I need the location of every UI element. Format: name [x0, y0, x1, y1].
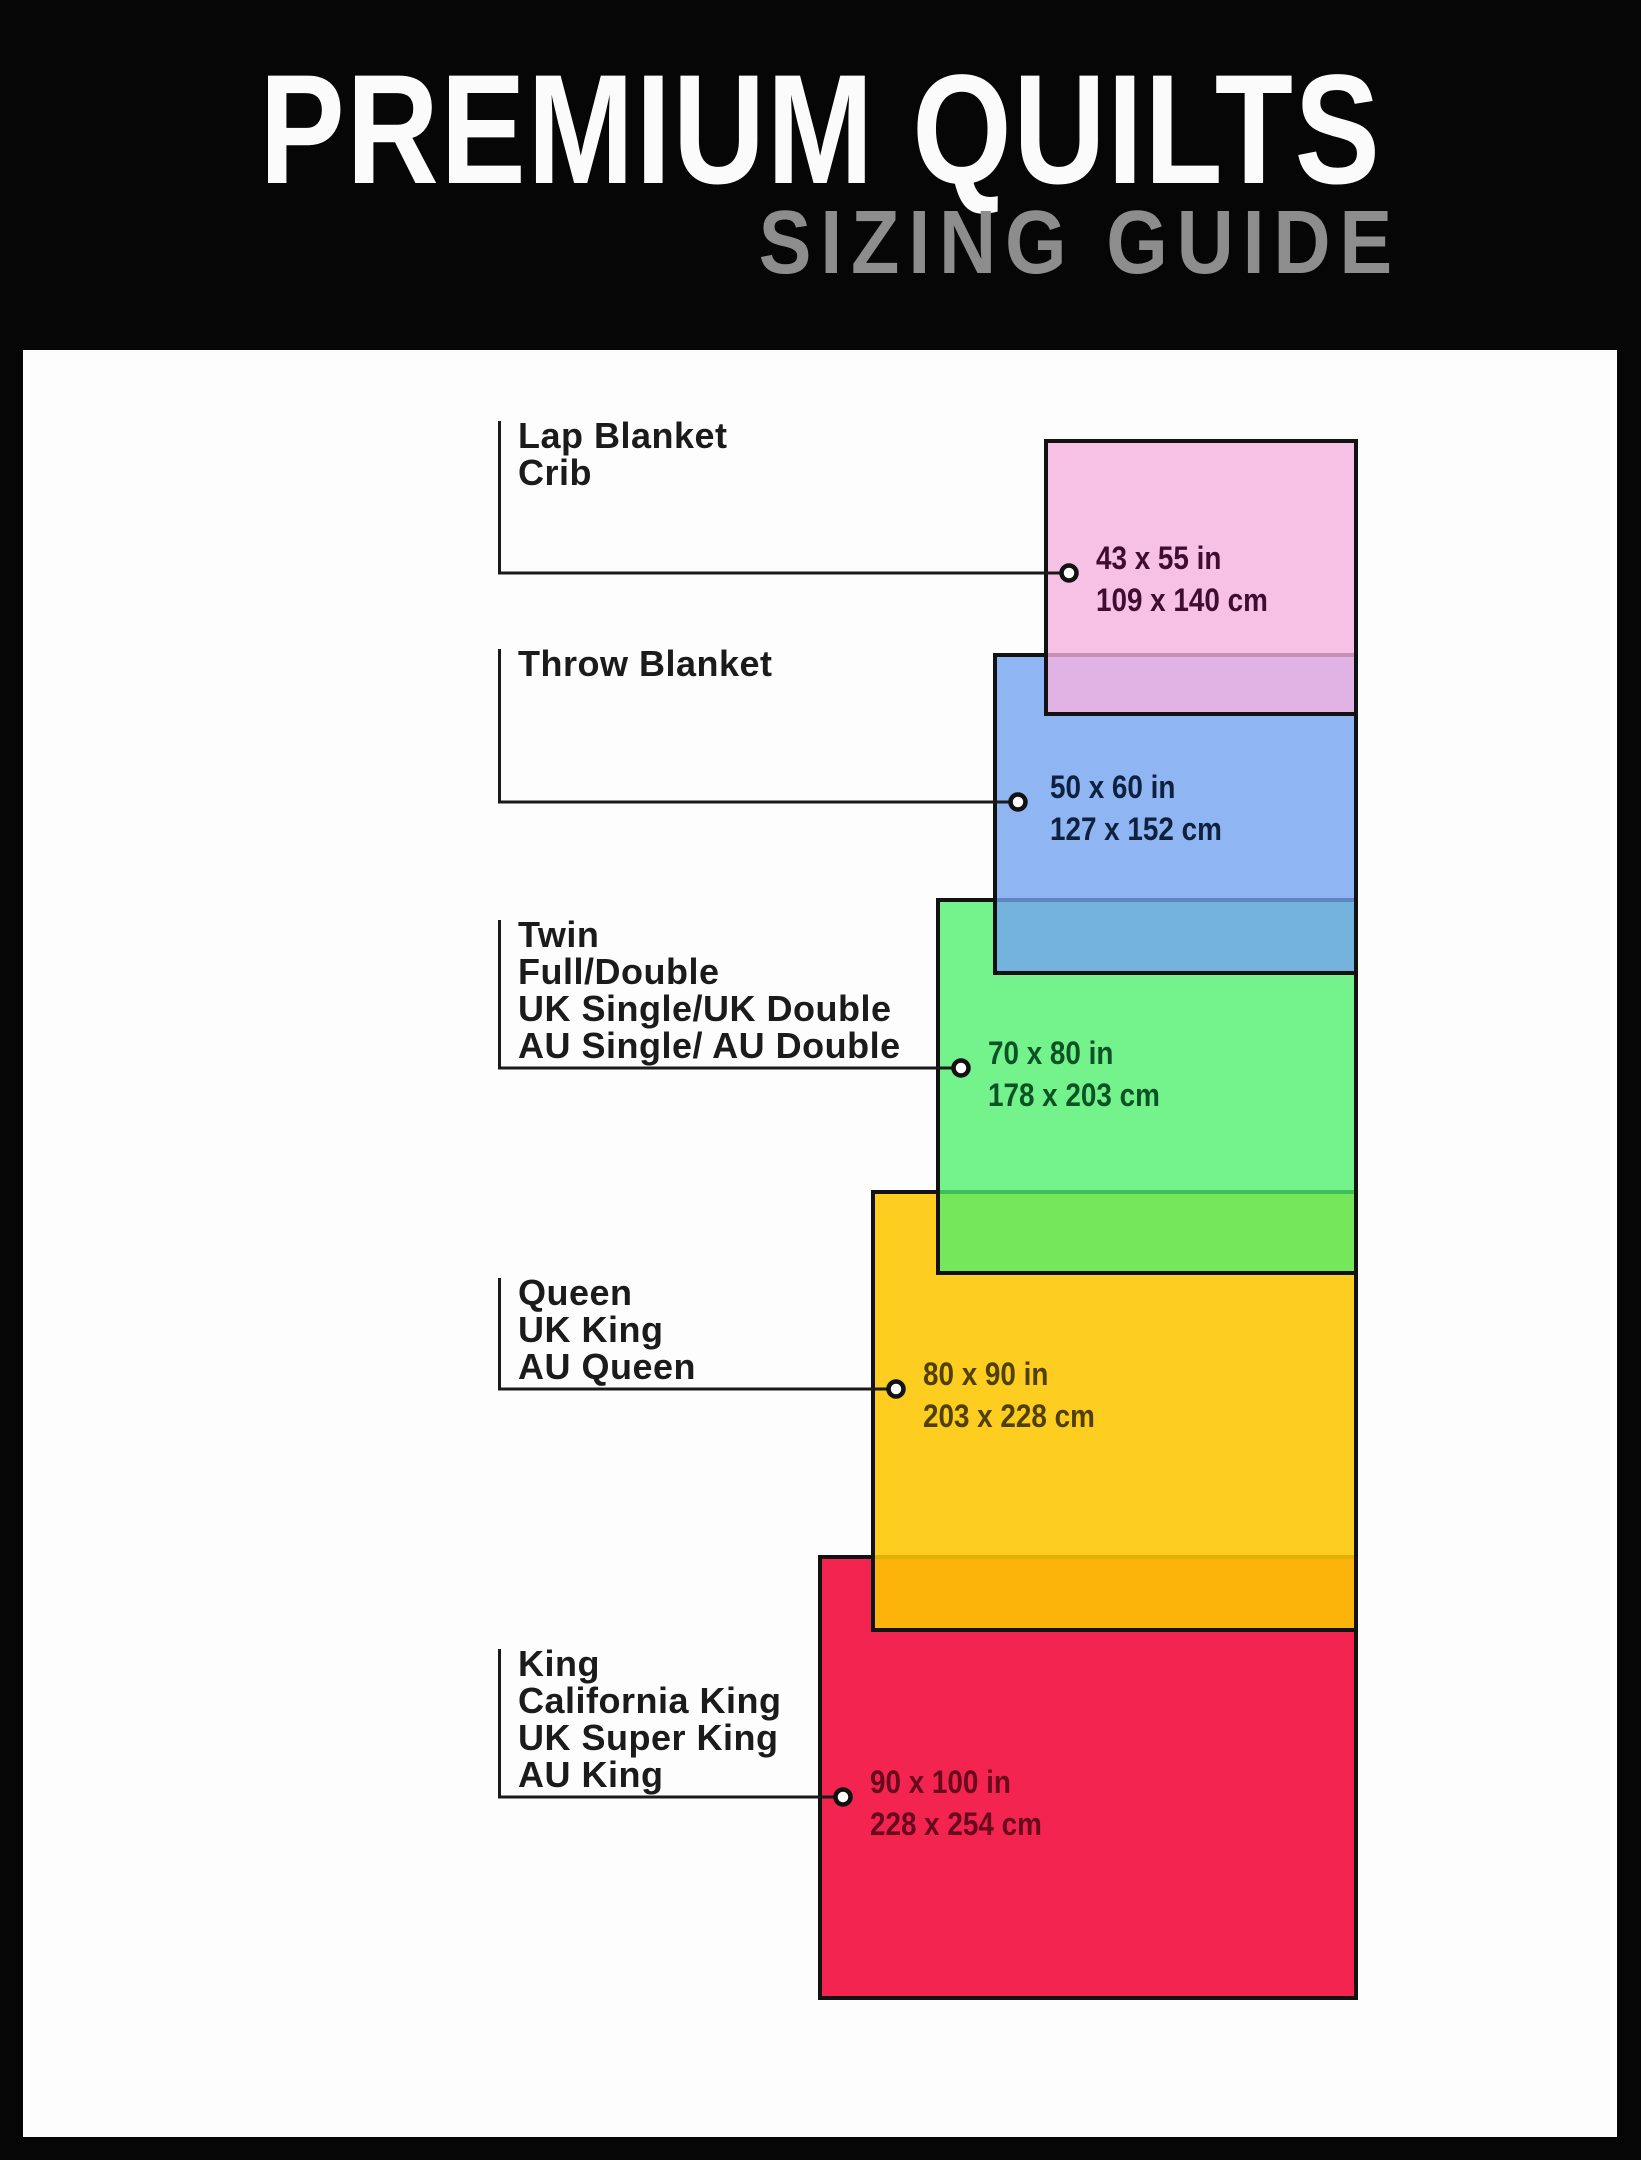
label-line: Twin	[518, 916, 901, 953]
label-block-throw-blanket: Throw Blanket	[518, 645, 773, 682]
label-line: Lap Blanket	[518, 417, 728, 454]
label-block-lap-blanket-crib: Lap Blanket Crib	[518, 417, 728, 491]
label-block-king: King California King UK Super King AU Ki…	[518, 1645, 782, 1793]
size-label-queen: 80 x 90 in 203 x 228 cm	[923, 1353, 1095, 1437]
size-label-cm: 203 x 228 cm	[923, 1395, 1095, 1437]
size-label-in: 43 x 55 in	[1096, 537, 1268, 579]
infographic-page: PREMIUM QUILTS SIZING GUIDE	[0, 0, 1641, 2160]
size-label-throw-blanket: 50 x 60 in 127 x 152 cm	[1050, 766, 1222, 850]
label-line: AU King	[518, 1756, 782, 1793]
label-line: UK Super King	[518, 1719, 782, 1756]
size-label-in: 70 x 80 in	[988, 1032, 1160, 1074]
page-subtitle: SIZING GUIDE	[759, 198, 1401, 288]
page-title: PREMIUM QUILTS	[148, 52, 1494, 208]
size-label-in: 90 x 100 in	[870, 1761, 1042, 1803]
size-label-king: 90 x 100 in 228 x 254 cm	[870, 1761, 1042, 1845]
label-line: Queen	[518, 1274, 696, 1311]
label-line: AU Queen	[518, 1348, 696, 1385]
size-label-cm: 228 x 254 cm	[870, 1803, 1042, 1845]
label-line: Crib	[518, 454, 728, 491]
label-line: UK Single/UK Double	[518, 990, 901, 1027]
size-label-in: 50 x 60 in	[1050, 766, 1222, 808]
label-line: UK King	[518, 1311, 696, 1348]
label-line: King	[518, 1645, 782, 1682]
label-block-twin: Twin Full/Double UK Single/UK Double AU …	[518, 916, 901, 1064]
size-label-cm: 178 x 203 cm	[988, 1074, 1160, 1116]
size-label-in: 80 x 90 in	[923, 1353, 1095, 1395]
size-label-twin: 70 x 80 in 178 x 203 cm	[988, 1032, 1160, 1116]
label-line: AU Single/ AU Double	[518, 1027, 901, 1064]
label-line: California King	[518, 1682, 782, 1719]
size-label-cm: 109 x 140 cm	[1096, 579, 1268, 621]
size-label-lap-blanket-crib: 43 x 55 in 109 x 140 cm	[1096, 537, 1268, 621]
label-block-queen: Queen UK King AU Queen	[518, 1274, 696, 1385]
label-line: Full/Double	[518, 953, 901, 990]
label-line: Throw Blanket	[518, 645, 773, 682]
size-label-cm: 127 x 152 cm	[1050, 808, 1222, 850]
